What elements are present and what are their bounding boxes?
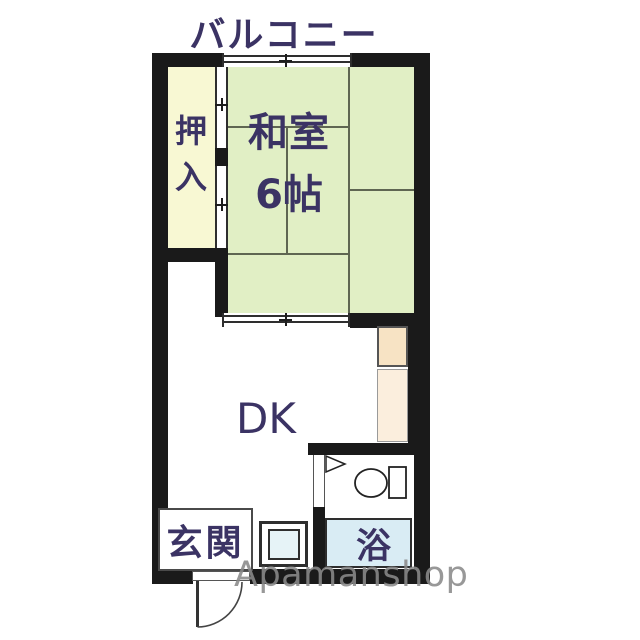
wall-kitchen-side (408, 313, 430, 455)
toilet-door-icon (326, 456, 345, 472)
window-center-mark (279, 54, 292, 67)
closet-label: 押入 (173, 108, 209, 200)
fusuma-tick-upper (215, 98, 228, 111)
washitsu-label: 和室 (228, 100, 350, 158)
tatami-line-horizontal-bottom (228, 253, 350, 255)
wall-closet-stub (215, 262, 228, 317)
genkan-label: 玄関 (166, 514, 244, 566)
tatami-line-right-column (350, 189, 414, 191)
wall-toilet-top (308, 443, 430, 455)
wall-bottom-left (152, 569, 193, 584)
watermark-text: Apamanshop (234, 555, 468, 595)
toilet-door-opening (313, 455, 325, 507)
kitchen-unit-lower (377, 369, 408, 442)
balcony-label: バルコニー (169, 6, 399, 58)
toilet-icon (355, 467, 406, 498)
wall-closet-bottom (155, 248, 228, 262)
fusuma-overlap-block (215, 148, 228, 166)
sliding-door-center-mark (279, 313, 292, 326)
dk-label: DK (226, 394, 306, 443)
floorplan-canvas: バルコニー 浴 玄関 押入 和室 6帖 DK (0, 0, 640, 640)
wall-left (152, 53, 168, 584)
fusuma-tick-lower (215, 198, 228, 211)
washitsu-size-label: 6帖 (228, 162, 350, 220)
kitchen-unit-upper (377, 326, 408, 367)
